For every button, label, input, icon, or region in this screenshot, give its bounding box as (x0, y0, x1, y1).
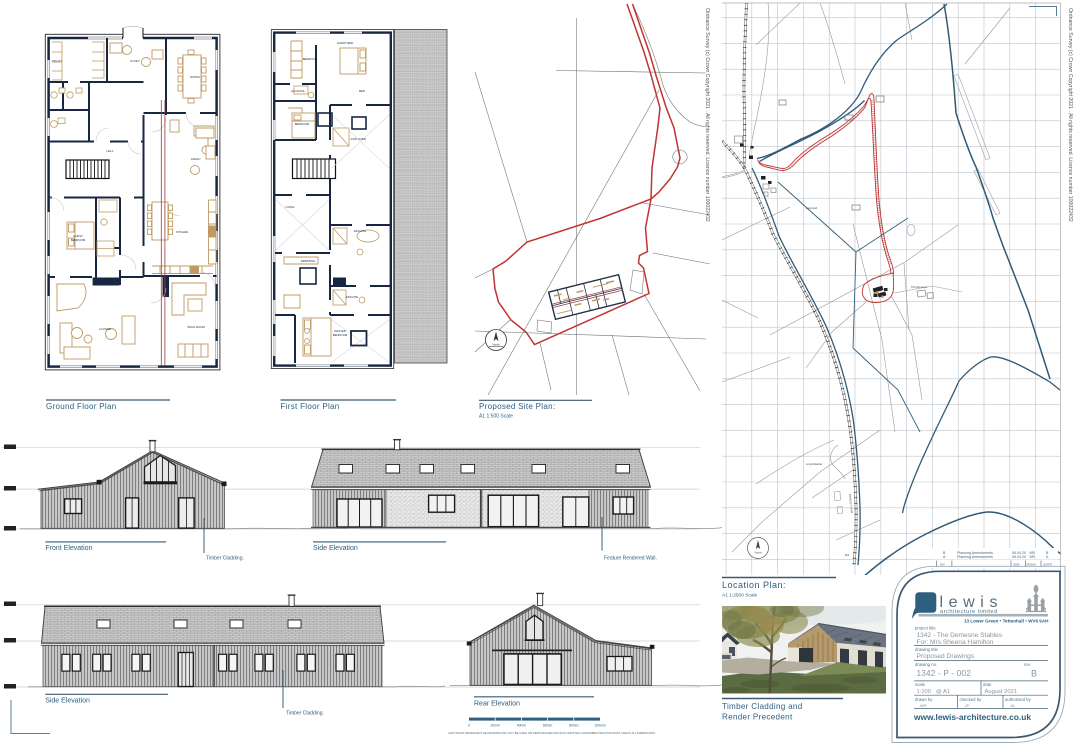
svg-text:1:100 @ A1: 1:100 @ A1 (917, 689, 951, 695)
svg-text:THE DRAWING MAY NOT BE USED OR: THE DRAWING MAY NOT BE USED OR REPRODUCE… (481, 731, 595, 735)
svg-text:VOID OVER: VOID OVER (350, 137, 366, 141)
svg-text:A1 1:2500 Scale: A1 1:2500 Scale (722, 593, 758, 599)
svg-text:date: date (983, 682, 992, 687)
svg-text:FAMILY: FAMILY (191, 157, 201, 161)
svg-text:Planning Amendments: Planning Amendments (957, 555, 993, 559)
svg-text:Lane End: Lane End (806, 206, 818, 210)
svg-text:0: 0 (468, 724, 470, 728)
svg-text:Timber Cladding and: Timber Cladding and (722, 702, 803, 711)
svg-text:MR: MR (1030, 555, 1036, 559)
svg-text:Location Plan:: Location Plan: (722, 580, 786, 590)
svg-text:Ground Floor Plan: Ground Floor Plan (46, 402, 116, 411)
svg-text:rev: rev (940, 562, 945, 566)
svg-text:www.lewis-architecture.co.uk: www.lewis-architecture.co.uk (913, 712, 1031, 722)
svg-text:100mm: 100mm (594, 724, 605, 728)
svg-text:BED: BED (359, 89, 365, 93)
svg-text:authorised by: authorised by (1005, 697, 1032, 702)
svg-text:Feature Rendered Wall.: Feature Rendered Wall. (604, 556, 657, 562)
svg-text:August 2021: August 2021 (985, 689, 1018, 695)
svg-text:Side Elevation: Side Elevation (313, 545, 358, 552)
svg-text:First Floor Plan: First Floor Plan (281, 402, 340, 411)
svg-text:rev: rev (1024, 662, 1031, 667)
svg-text:BEDROOM: BEDROOM (303, 57, 318, 61)
svg-text:ENSUITE: ENSUITE (354, 229, 366, 233)
svg-text:Proposed Drawings: Proposed Drawings (917, 653, 975, 660)
svg-text:COPYRIGHT RESERVED.: COPYRIGHT RESERVED. (448, 731, 482, 735)
svg-text:06.04.20: 06.04.20 (1012, 555, 1026, 559)
svg-text:HALL: HALL (107, 149, 114, 153)
svg-text:20mm: 20mm (490, 724, 500, 728)
svg-text:GUEST BED: GUEST BED (337, 41, 353, 45)
svg-text:JP: JP (964, 703, 970, 708)
svg-text:auth'd: auth'd (1043, 562, 1052, 566)
svg-text:date: date (1013, 562, 1020, 566)
svg-text:The Demesne: The Demesne (911, 285, 928, 289)
svg-text:Timber Cladding.: Timber Cladding. (206, 556, 244, 562)
svg-text:drawing title: drawing title (915, 647, 939, 652)
svg-text:LOUNGE: LOUNGE (99, 327, 111, 331)
svg-text:Ordnance Survey (c) Crown Copy: Ordnance Survey (c) Crown Copyright 2021… (1067, 8, 1073, 222)
svg-text:North: North (755, 551, 762, 555)
svg-text:For: Mrs Sheena Hamilton: For: Mrs Sheena Hamilton (917, 639, 994, 646)
svg-text:Timber Cladding.: Timber Cladding. (286, 711, 324, 717)
svg-text:Side Elevation: Side Elevation (45, 698, 90, 705)
svg-text:drawn: drawn (1027, 562, 1036, 566)
svg-text:DRESSING: DRESSING (301, 259, 316, 263)
svg-text:North: North (492, 343, 500, 347)
svg-text:BEDROOM: BEDROOM (71, 238, 86, 242)
svg-text:architecture limited: architecture limited (940, 609, 998, 615)
svg-text:1342 - P - 002: 1342 - P - 002 (917, 669, 972, 678)
svg-text:13 Lower Green • Tettenhall •: 13 Lower Green • Tettenhall • WV6 9AH (964, 618, 1049, 623)
svg-text:Front Elevation: Front Elevation (45, 545, 92, 552)
svg-text:BEDROOM: BEDROOM (295, 122, 310, 126)
svg-text:drawn by: drawn by (915, 697, 933, 702)
svg-text:drawing no.: drawing no. (915, 662, 937, 667)
svg-text:80mm: 80mm (569, 724, 579, 728)
svg-text:STUDY: STUDY (130, 59, 140, 63)
svg-text:Long Meadow: Long Meadow (806, 462, 822, 466)
svg-text:MR: MR (920, 703, 926, 708)
svg-text:BEDROOM: BEDROOM (333, 333, 348, 337)
svg-text:scale: scale (915, 682, 926, 687)
svg-text:Proposed Site Plan:: Proposed Site Plan: (479, 402, 555, 411)
svg-text:Render Precedent: Render Precedent (722, 712, 793, 721)
svg-text:ENSUITE: ENSUITE (346, 295, 358, 299)
svg-text:DINING: DINING (190, 75, 200, 79)
svg-text:AL: AL (1010, 703, 1016, 708)
svg-text:checked by: checked by (960, 697, 983, 702)
svg-text:project title: project title (915, 625, 936, 630)
svg-text:B: B (1031, 669, 1037, 679)
svg-text:CONTRACTOR MUST CHECK ALL DIME: CONTRACTOR MUST CHECK ALL DIMENSIONS. (592, 731, 656, 735)
svg-text:EN-SUITE: EN-SUITE (291, 89, 304, 93)
svg-text:UTILITY: UTILITY (52, 59, 63, 63)
svg-text:A1 1:500 Scale: A1 1:500 Scale (479, 414, 513, 420)
svg-text:40mm: 40mm (517, 724, 527, 728)
svg-text:Mill: Mill (845, 553, 849, 557)
svg-text:Rear Elevation: Rear Elevation (474, 701, 520, 708)
svg-text:SNUG ROOM: SNUG ROOM (187, 325, 205, 329)
svg-text:60mm: 60mm (543, 724, 553, 728)
svg-text:Ordnance Survey (c) Crown Copy: Ordnance Survey (c) Crown Copyright 2021… (704, 8, 710, 222)
svg-text:LIVING: LIVING (285, 205, 294, 209)
svg-text:KITCHEN: KITCHEN (176, 230, 188, 234)
svg-text:1342 - The Demesne Stables: 1342 - The Demesne Stables (917, 632, 1003, 639)
